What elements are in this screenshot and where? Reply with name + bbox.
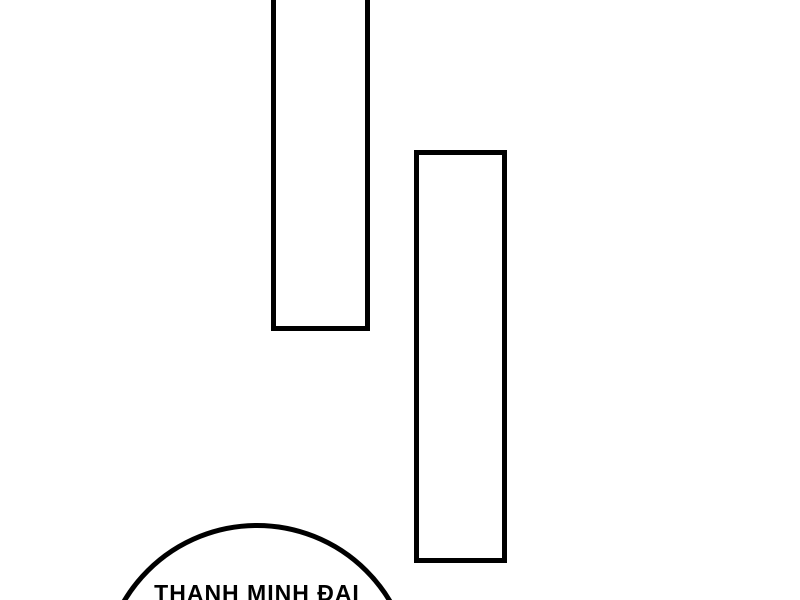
speech-bubble-text: THANH MINH ĐẠI bbox=[100, 581, 414, 600]
comic-panel-right bbox=[414, 150, 507, 563]
comic-page: THANH MINH ĐẠI bbox=[0, 0, 800, 600]
comic-panel-top bbox=[271, 0, 370, 331]
